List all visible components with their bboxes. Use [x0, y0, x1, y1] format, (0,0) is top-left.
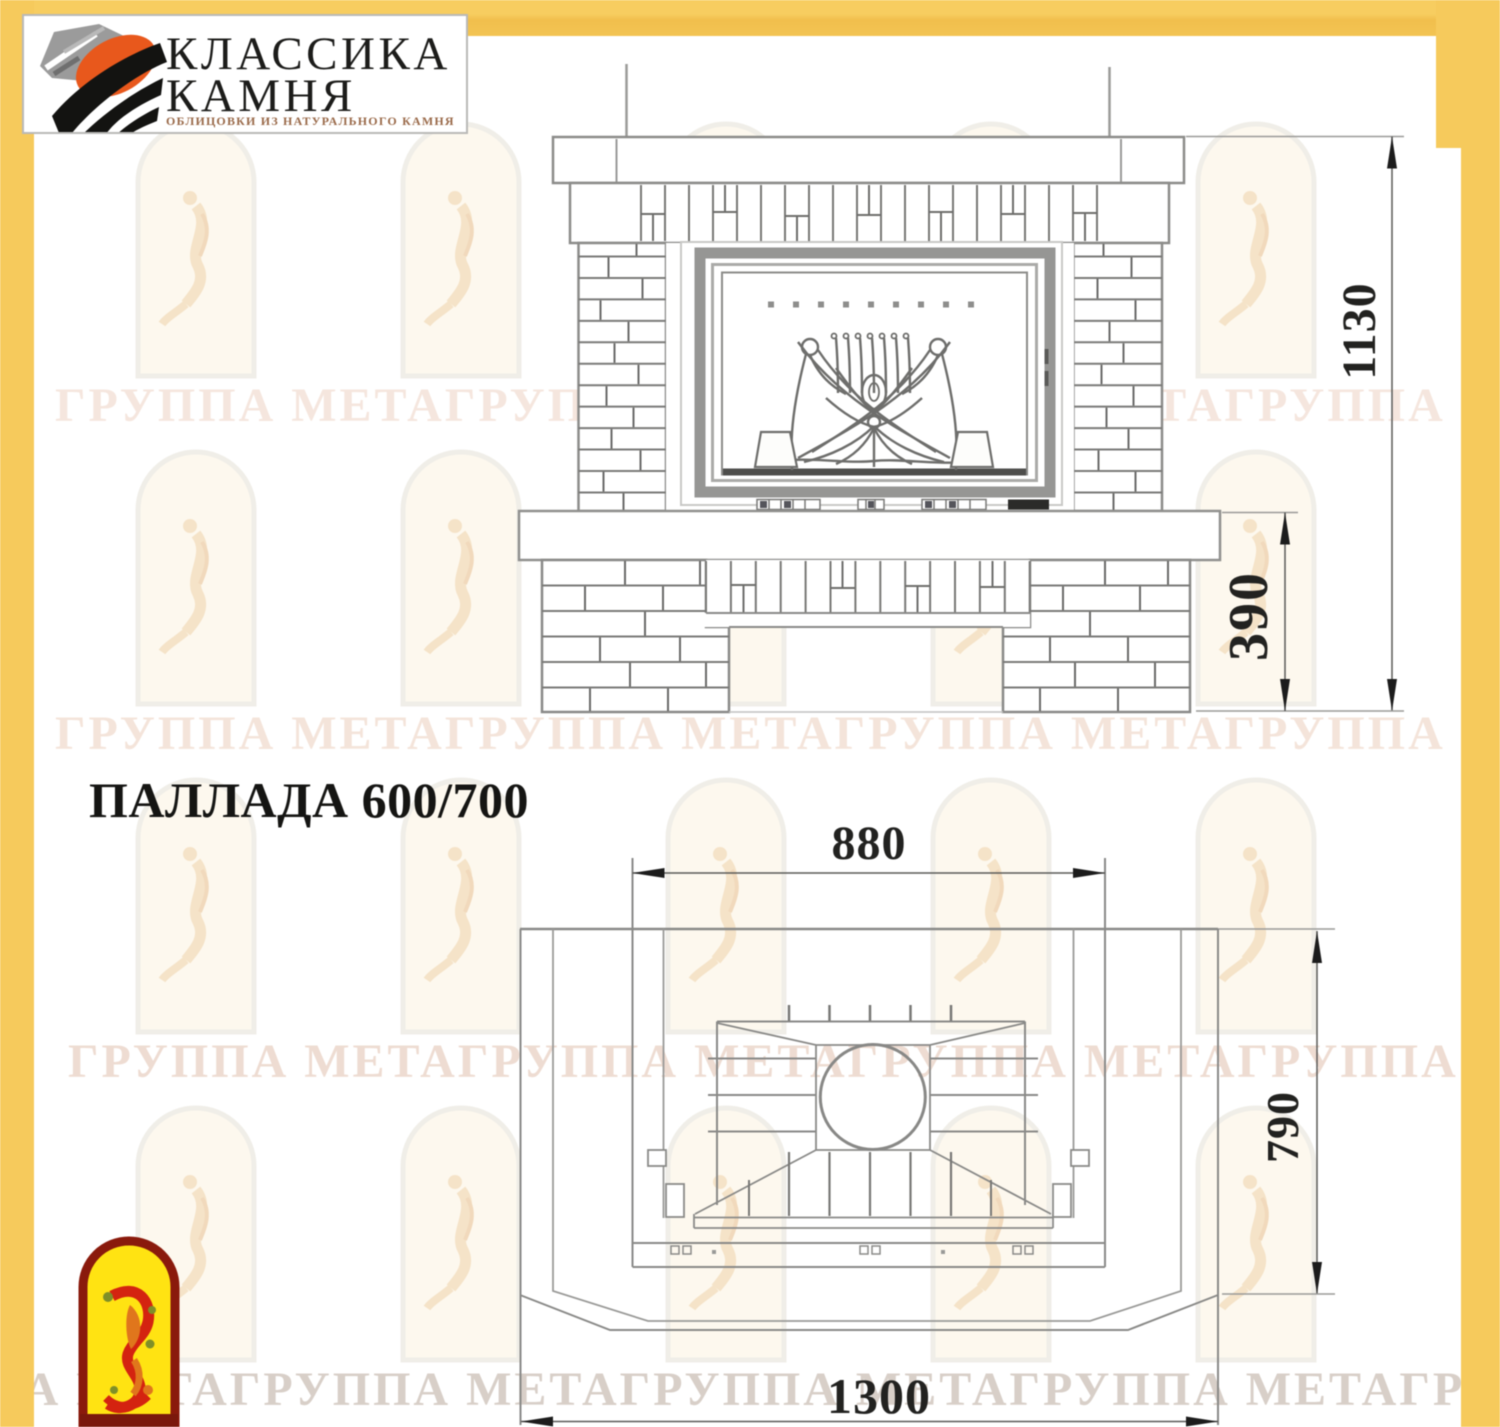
svg-text:ГРУППА МЕТАГРУППА МЕТАГРУППА М: ГРУППА МЕТАГРУППА МЕТАГРУППА МЕТАГРУППА … [55, 707, 1500, 760]
svg-text:1130: 1130 [1333, 282, 1386, 379]
svg-text:1300: 1300 [827, 1368, 931, 1424]
svg-text:ГРУППА МЕТАГРУППА МЕТАГРУППА М: ГРУППА МЕТАГРУППА МЕТАГРУППА МЕТАГРУППА … [0, 1363, 1500, 1416]
svg-text:ОБЛИЦОВКИ ИЗ НАТУРАЛЬНОГО КАМН: ОБЛИЦОВКИ ИЗ НАТУРАЛЬНОГО КАМНЯ [166, 114, 455, 128]
svg-text:ГРУППА МЕТАГРУППА МЕТАГРУППА М: ГРУППА МЕТАГРУППА МЕТАГРУППА МЕТАГРУППА … [68, 1035, 1500, 1088]
svg-text:790: 790 [1257, 1091, 1308, 1163]
svg-text:880: 880 [832, 817, 907, 870]
svg-text:390: 390 [1218, 571, 1280, 661]
